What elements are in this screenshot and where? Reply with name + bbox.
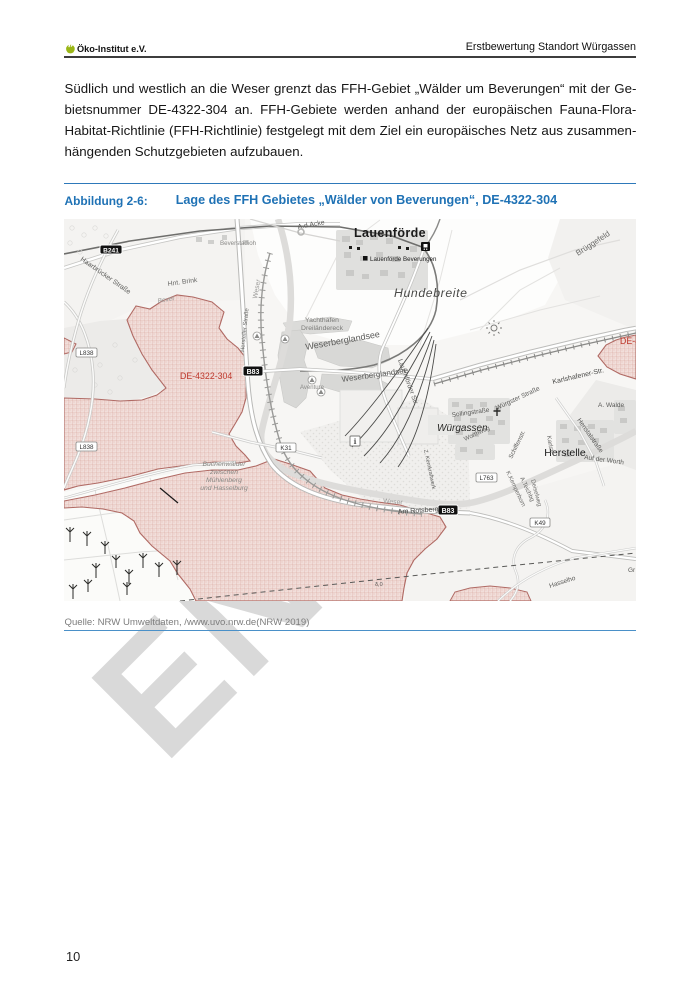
svg-text:Weser: Weser [383, 498, 404, 506]
svg-text:B241: B241 [103, 247, 119, 254]
svg-text:Mühlenberg: Mühlenberg [206, 477, 242, 484]
svg-text:B83: B83 [442, 508, 455, 515]
svg-text:K49: K49 [534, 520, 546, 527]
svg-text:A. Walde: A. Walde [598, 402, 625, 409]
svg-text:L838: L838 [79, 444, 94, 451]
svg-text:ℹ: ℹ [354, 437, 357, 446]
svg-text:und Hasselburg: und Hasselburg [200, 485, 248, 492]
svg-text:Yachthafen: Yachthafen [305, 317, 339, 324]
svg-text:Dreiländereck: Dreiländereck [301, 325, 344, 332]
svg-text:Gr: Gr [628, 567, 636, 574]
svg-text:L763: L763 [479, 475, 494, 482]
svg-text:δ,0: δ,0 [375, 582, 383, 588]
svg-text:Aventure: Aventure [300, 385, 325, 391]
svg-text:Beverstadioh: Beverstadioh [220, 240, 257, 247]
svg-text:DE-4322-304: DE-4322-304 [180, 371, 232, 381]
svg-text:Lauenförde Beverungen: Lauenförde Beverungen [370, 256, 437, 263]
svg-text:Lauenförde: Lauenförde [354, 226, 426, 240]
svg-text:K31: K31 [280, 445, 292, 452]
svg-text:DE-4: DE-4 [620, 336, 636, 346]
svg-text:Hundebreite: Hundebreite [394, 286, 468, 300]
svg-text:B83: B83 [247, 369, 260, 376]
svg-text:L838: L838 [79, 350, 94, 357]
svg-text:Buchenwälder: Buchenwälder [202, 461, 246, 468]
svg-text:zwischen: zwischen [209, 469, 238, 476]
